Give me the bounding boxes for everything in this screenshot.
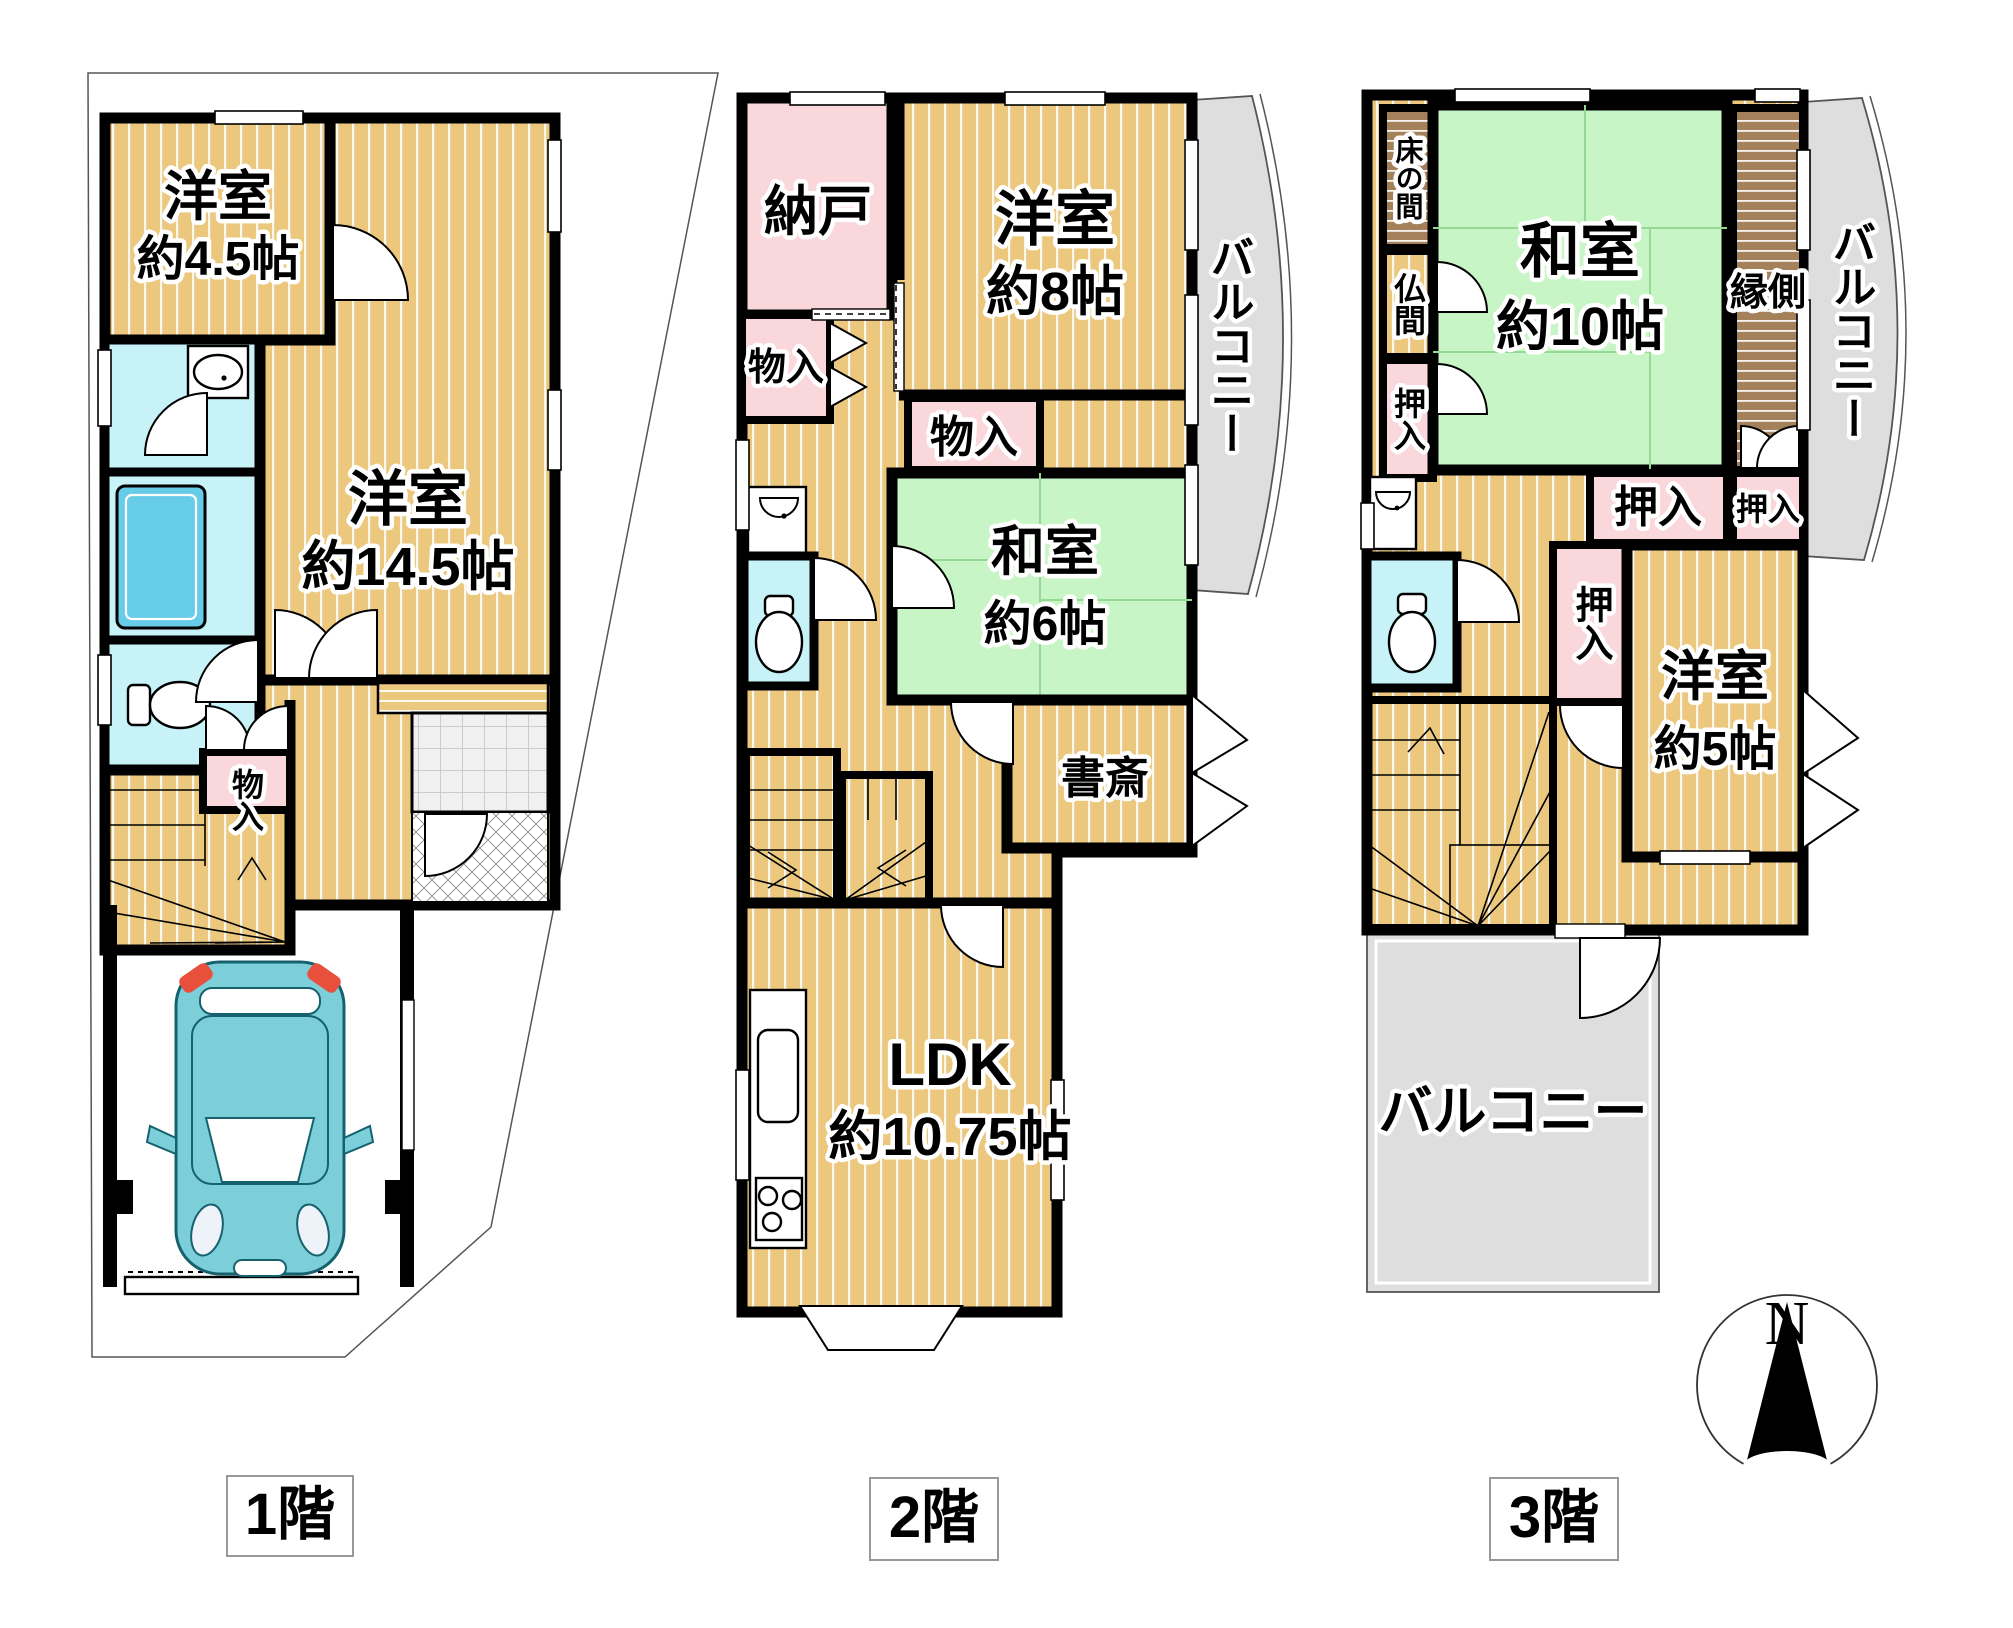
genkan-tile xyxy=(412,713,548,812)
label-washitsu6-line1: 和室 xyxy=(991,522,1099,582)
label-washitsu6-line2: 約6帖 xyxy=(984,598,1107,651)
floor2-label: 2階 xyxy=(889,1485,979,1550)
window xyxy=(1797,150,1810,250)
label-butsuma: 仏間 xyxy=(1390,272,1426,336)
window xyxy=(548,390,561,470)
garage-window xyxy=(402,1000,414,1150)
needle-notch xyxy=(1743,1451,1831,1481)
car-windshield xyxy=(206,1118,314,1182)
label-balcony-3f-side: バルコニー xyxy=(1826,220,1875,440)
label-closet-3f-small: 押入 xyxy=(1736,491,1800,527)
window xyxy=(1185,465,1198,565)
label-ldk-line2: 約10.75帖 xyxy=(828,1107,1071,1167)
genkan-step xyxy=(378,683,548,713)
stove-burner-icon xyxy=(763,1213,781,1231)
label-closet-1f: 物入 xyxy=(228,768,264,832)
window xyxy=(1005,92,1105,105)
label-western145-line1: 洋室 xyxy=(348,466,468,533)
label-engawa: 縁側 xyxy=(1730,272,1806,314)
garage-wall xyxy=(103,905,117,1287)
kitchen-sink-icon xyxy=(758,1030,798,1122)
window xyxy=(1755,89,1800,102)
label-western5-line1: 洋室 xyxy=(1661,647,1769,707)
washbasin-2f xyxy=(748,487,806,553)
label-washitsu10-line2: 約10帖 xyxy=(1496,297,1664,357)
toilet-tank-1f xyxy=(128,685,150,725)
garage-pillar xyxy=(103,1180,133,1214)
label-nando: 納戸 xyxy=(764,182,872,242)
bay-window-western5 xyxy=(1803,690,1858,848)
window xyxy=(1185,140,1198,250)
toilet-icon-3f xyxy=(1389,612,1435,672)
window xyxy=(98,655,111,725)
label-closet-2f-left: 物入 xyxy=(748,347,824,389)
label-western8-line1: 洋室 xyxy=(995,186,1115,253)
window xyxy=(98,350,111,426)
window xyxy=(215,111,303,124)
label-western8-line2: 約8帖 xyxy=(986,262,1124,322)
toilet-icon-2f xyxy=(756,612,802,672)
label-closet-3f-left: 押入 xyxy=(1390,387,1426,451)
balcony-doorway xyxy=(1555,924,1625,938)
label-closet-3f-tall: 押入 xyxy=(1569,585,1613,661)
floor-labels: 1階 2階 3階 xyxy=(227,1476,1618,1560)
stove-burner-icon xyxy=(783,1191,801,1209)
washbasin-3f xyxy=(1370,477,1416,549)
label-closet-3f-wide: 押入 xyxy=(1614,483,1702,532)
window xyxy=(1185,295,1198,425)
label-western45-line2: 約4.5帖 xyxy=(137,233,300,286)
floor1-label: 1階 xyxy=(245,1482,335,1547)
car-bumper xyxy=(234,1260,286,1276)
label-ldk-line1: LDK xyxy=(888,1031,1011,1098)
washbasin-icon xyxy=(194,355,242,389)
window xyxy=(790,92,885,105)
floor3-plan: 床の間 仏間 押入 和室 約10帖 縁側 バルコニー 押入 押入 押入 洋室 約… xyxy=(1361,89,1906,1292)
bay-window-ldk xyxy=(800,1306,962,1350)
label-balcony-3f-bottom: バルコニー xyxy=(1379,1082,1648,1142)
drain-dot xyxy=(1395,506,1400,511)
bathtub-icon xyxy=(117,486,205,628)
label-tokonoma: 床の間 xyxy=(1393,135,1424,220)
window xyxy=(1660,851,1750,864)
window xyxy=(1361,503,1374,549)
stove-burner-icon xyxy=(759,1187,777,1205)
compass: N xyxy=(1697,1290,1877,1481)
window xyxy=(736,440,749,530)
label-closet-2f-mid: 物入 xyxy=(930,413,1018,462)
drain-dot xyxy=(221,375,226,380)
floor-plan-drawing: 洋室 約4.5帖 洋室 約14.5帖 物入 xyxy=(0,0,2013,1628)
bay-window-study xyxy=(1192,695,1247,846)
floor1-plan: 洋室 約4.5帖 洋室 約14.5帖 物入 xyxy=(88,73,718,1357)
garage-gate xyxy=(125,1277,358,1294)
window xyxy=(1797,300,1810,430)
floor-plan-page: 洋室 約4.5帖 洋室 約14.5帖 物入 xyxy=(0,0,2013,1628)
window xyxy=(736,1070,749,1180)
car xyxy=(147,961,373,1276)
window xyxy=(548,140,561,232)
window xyxy=(1455,89,1590,102)
drain-dot xyxy=(781,513,786,518)
label-western5-line2: 約5帖 xyxy=(1654,723,1777,776)
floor3-label: 3階 xyxy=(1509,1485,1599,1550)
label-study: 書斎 xyxy=(1061,754,1149,803)
floor2-plan: 納戸 物入 洋室 約8帖 物入 和室 約6帖 書斎 LDK 約10.75帖 バル… xyxy=(736,92,1292,1350)
car-rear-window xyxy=(200,988,320,1014)
label-western45-line1: 洋室 xyxy=(164,167,272,227)
label-balcony-2f: バルコニー xyxy=(1204,235,1253,455)
label-western145-line2: 約14.5帖 xyxy=(301,537,514,597)
label-washitsu10-line1: 和室 xyxy=(1520,218,1640,285)
garage-pillar xyxy=(385,1180,414,1214)
